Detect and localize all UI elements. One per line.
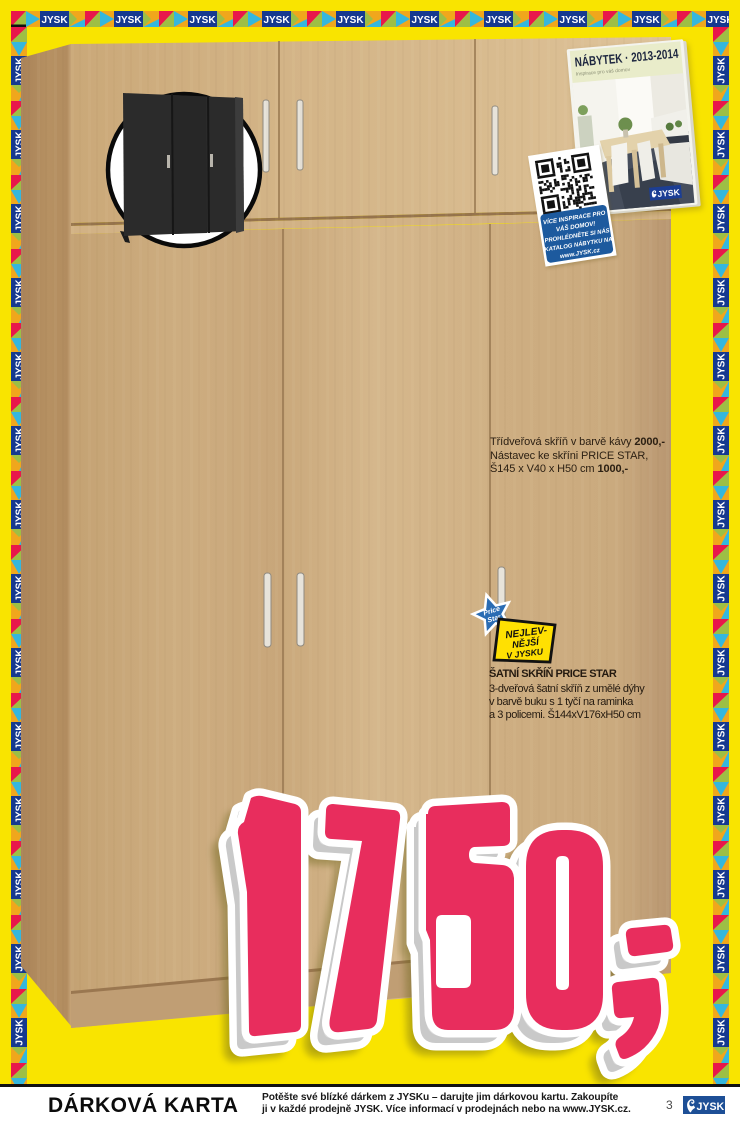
svg-text:JYSK: JYSK [697,1101,725,1113]
svg-text:JYSK: JYSK [657,187,681,199]
